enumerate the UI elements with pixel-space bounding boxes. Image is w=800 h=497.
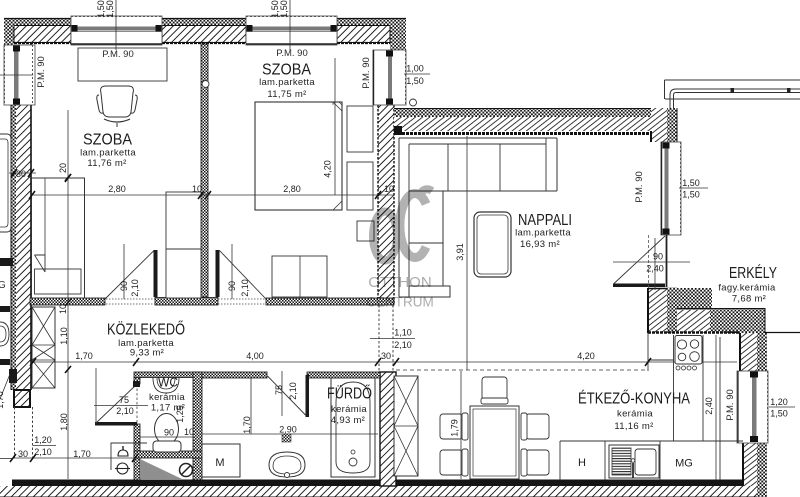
svg-text:SZOBA: SZOBA [262,62,311,79]
svg-text:P.M. 90: P.M. 90 [102,49,134,60]
svg-text:kerámia: kerámia [617,409,653,420]
svg-text:11,16 m²: 11,16 m² [614,421,653,432]
svg-text:1,50: 1,50 [682,178,700,188]
svg-text:2,80: 2,80 [108,184,126,194]
svg-text:10: 10 [58,304,68,314]
svg-text:30: 30 [18,449,28,459]
svg-text:1,70: 1,70 [73,449,91,459]
svg-text:90: 90 [653,252,663,262]
svg-text:M: M [215,457,224,469]
svg-text:1,25: 1,25 [175,405,185,423]
svg-text:P.M. 90: P.M. 90 [361,57,372,89]
svg-text:1,00: 1,00 [406,64,424,74]
svg-text:2,90: 2,90 [279,425,297,435]
svg-text:SZOBA: SZOBA [83,132,132,149]
svg-text:30: 30 [16,169,26,179]
svg-text:3,91: 3,91 [455,243,465,261]
svg-text:OTTHON: OTTHON [368,274,431,291]
svg-text:1,20: 1,20 [34,435,52,445]
svg-text:ERKÉLY: ERKÉLY [729,263,777,282]
svg-text:2,10: 2,10 [394,340,412,350]
svg-text:2,10: 2,10 [130,279,140,297]
svg-text:2,40: 2,40 [704,397,714,415]
svg-text:1,50: 1,50 [105,0,115,18]
svg-text:4,00: 4,00 [246,351,264,361]
svg-text:1,70: 1,70 [0,391,5,409]
svg-text:4,93 m²: 4,93 m² [331,415,365,426]
svg-text:1,50: 1,50 [279,0,289,18]
svg-text:9,33 m²: 9,33 m² [130,348,164,359]
svg-text:NAPPALI: NAPPALI [518,212,572,229]
svg-text:90: 90 [119,281,129,291]
svg-text:11,76 m²: 11,76 m² [87,158,126,169]
svg-text:lam.parketta: lam.parketta [515,228,571,239]
svg-text:1,70: 1,70 [242,416,252,434]
svg-text:P.M. 90: P.M. 90 [36,56,47,88]
svg-text:1,50: 1,50 [770,409,788,419]
svg-text:CENTRUM: CENTRUM [366,295,434,310]
svg-text:10: 10 [384,184,394,194]
svg-text:2,10: 2,10 [240,279,250,297]
svg-text:P.M. 90: P.M. 90 [276,48,308,59]
svg-text:WC: WC [158,375,178,390]
svg-text:G: G [0,280,6,291]
svg-text:1,10: 1,10 [394,328,412,338]
svg-text:90: 90 [164,428,174,438]
svg-text:4,20: 4,20 [577,351,595,361]
svg-text:16,93 m²: 16,93 m² [520,239,560,250]
svg-text:2,10: 2,10 [288,382,298,400]
svg-text:FÜRDŐ: FÜRDŐ [327,384,372,403]
svg-text:fagy.kerámia: fagy.kerámia [718,283,776,294]
svg-text:2,40: 2,40 [646,264,664,274]
svg-text:7,68 m²: 7,68 m² [732,294,766,305]
svg-text:lam.parketta: lam.parketta [80,148,136,159]
svg-text:2,10: 2,10 [116,406,134,416]
svg-text:1,80: 1,80 [59,413,69,431]
svg-text:75: 75 [274,385,284,395]
svg-text:P.M. 90: P.M. 90 [725,389,736,421]
svg-text:20: 20 [58,163,68,173]
svg-text:1,20: 1,20 [770,397,788,407]
svg-text:75: 75 [119,395,129,405]
svg-text:4,20: 4,20 [323,160,333,178]
svg-text:10: 10 [184,427,194,437]
svg-text:30: 30 [381,351,391,361]
svg-text:ÉTKEZŐ-KONYHA: ÉTKEZŐ-KONYHA [578,389,690,408]
svg-text:1,70: 1,70 [75,351,93,361]
svg-text:11,75 m²: 11,75 m² [267,89,306,100]
svg-text:1,79: 1,79 [450,419,460,437]
svg-text:kerámia: kerámia [149,392,185,403]
svg-text:10: 10 [192,184,202,194]
svg-text:2,10: 2,10 [34,447,52,457]
svg-text:2,80: 2,80 [283,184,301,194]
svg-text:P.M. 90: P.M. 90 [634,171,645,203]
svg-text:H: H [578,457,586,469]
svg-text:MG: MG [675,458,693,470]
svg-text:lam.parketta: lam.parketta [259,77,315,88]
svg-text:KÖZLEKEDŐ: KÖZLEKEDŐ [107,320,185,339]
svg-text:kerámia: kerámia [331,404,367,415]
svg-text:1,50: 1,50 [406,76,424,86]
svg-text:1,10: 1,10 [59,327,69,345]
svg-text:90: 90 [227,281,237,291]
svg-text:1,50: 1,50 [682,190,700,200]
